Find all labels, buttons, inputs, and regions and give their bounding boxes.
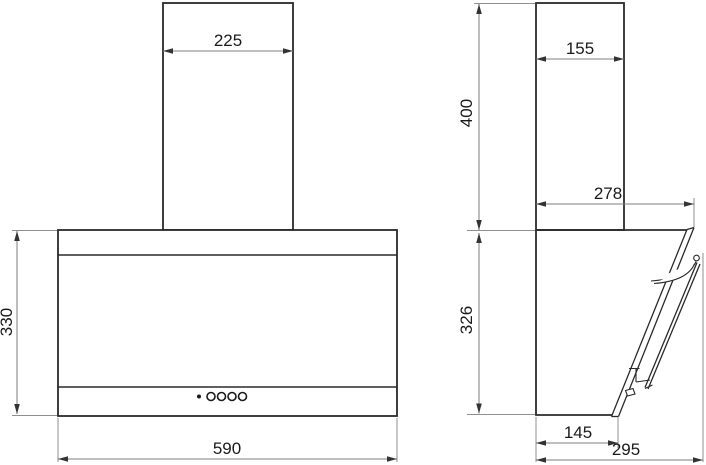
dimension-label-body-width: 590: [213, 439, 241, 458]
front-hood-body: [58, 230, 397, 416]
tilted-door-panel: [612, 228, 695, 417]
dimension-label-duct-depth: 155: [566, 39, 594, 58]
glass-panel: [626, 255, 701, 396]
control-button: [218, 393, 226, 401]
hinge-tab: [626, 389, 636, 397]
dimension-side-body-height: 326: [457, 233, 535, 415]
control-button: [228, 393, 236, 401]
dimension-label-overall-depth: 295: [612, 440, 640, 459]
glass-rolled-edge: [694, 255, 700, 261]
drawing-svg: 225 330 590: [0, 0, 706, 465]
dimension-label-side-body-height: 326: [457, 306, 476, 334]
hinge-bracket: [629, 369, 650, 383]
dimension-label-bottom-depth: 145: [564, 423, 592, 442]
dimension-drawing: 225 330 590: [0, 0, 706, 465]
dimension-side-overall-depth: 295: [536, 253, 703, 462]
side-hood-body: [536, 230, 687, 415]
dimension-label-duct-width: 225: [214, 31, 242, 50]
front-view: 225 330 590: [0, 3, 397, 462]
dimension-side-duct-height: 400: [457, 4, 535, 231]
indicator-light: [197, 395, 201, 399]
dimension-label-duct-height: 400: [457, 99, 476, 127]
control-button: [239, 393, 247, 401]
dimension-front-body-height: 330: [0, 231, 57, 416]
control-button: [207, 393, 215, 401]
dimension-side-bottom-depth: 145: [536, 417, 618, 462]
dimension-label-upper-depth: 278: [594, 184, 622, 203]
side-view: 155 400 278 326: [457, 3, 703, 462]
dimension-front-body-width: 590: [58, 418, 397, 462]
door-outer-edge: [619, 228, 695, 417]
dimension-label-body-height: 330: [0, 308, 16, 336]
